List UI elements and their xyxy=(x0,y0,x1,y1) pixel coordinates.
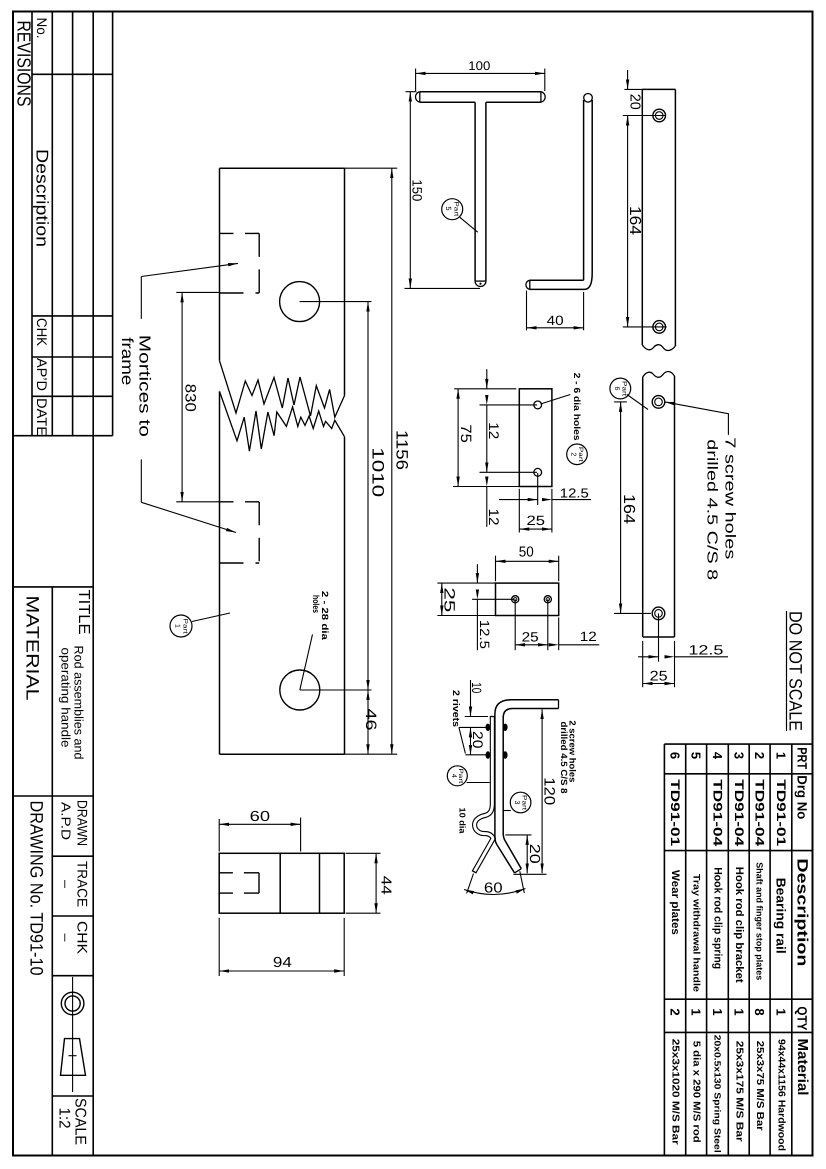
svg-text:Shaft and finger stop plates: Shaft and finger stop plates xyxy=(755,862,765,980)
svg-text:operating handle: operating handle xyxy=(59,648,73,748)
svg-text:Part: Part xyxy=(577,447,584,462)
svg-text:Bearing rail: Bearing rail xyxy=(773,878,788,954)
svg-text:1: 1 xyxy=(773,752,788,759)
svg-text:4: 4 xyxy=(710,752,725,760)
svg-text:drilled 4.5 C/S 8: drilled 4.5 C/S 8 xyxy=(559,722,569,794)
svg-text:7 screw holes: 7 screw holes xyxy=(722,437,738,559)
svg-text:60: 60 xyxy=(484,880,503,896)
svg-text:DRAWING No. TD91-10: DRAWING No. TD91-10 xyxy=(27,801,47,976)
svg-text:TD91-04: TD91-04 xyxy=(732,779,746,846)
svg-text:TD91-01: TD91-01 xyxy=(668,779,682,846)
svg-text:Part: Part xyxy=(620,381,627,396)
svg-text:25: 25 xyxy=(527,513,546,528)
svg-text:8: 8 xyxy=(752,1008,767,1015)
svg-text:75: 75 xyxy=(457,424,474,443)
svg-text:Mortices to: Mortices to xyxy=(135,335,152,437)
svg-text:150: 150 xyxy=(409,179,424,201)
svg-text:CHK: CHK xyxy=(75,921,91,955)
svg-text:1: 1 xyxy=(710,1008,725,1015)
svg-text:Hook rod clip bracket: Hook rod clip bracket xyxy=(733,867,745,983)
svg-text:No.: No. xyxy=(34,18,50,39)
svg-text:40: 40 xyxy=(547,313,564,328)
svg-text:Rod assemblies and: Rod assemblies and xyxy=(72,646,86,760)
svg-text:drilled 4.5 C/S 8: drilled 4.5 C/S 8 xyxy=(704,439,720,580)
svg-text:Description: Description xyxy=(33,149,52,247)
svg-text:50: 50 xyxy=(519,545,534,561)
svg-text:frame: frame xyxy=(118,337,135,385)
svg-text:12.5: 12.5 xyxy=(477,620,492,649)
svg-text:Part: Part xyxy=(181,619,188,634)
svg-text:–: – xyxy=(59,880,74,889)
svg-text:5 dia x 290 M/S rod: 5 dia x 290 M/S rod xyxy=(691,1041,702,1143)
svg-text:25: 25 xyxy=(522,629,539,644)
svg-text:4: 4 xyxy=(450,774,457,778)
svg-text:DO NOT SCALE: DO NOT SCALE xyxy=(786,611,806,731)
svg-text:44: 44 xyxy=(378,876,394,895)
svg-text:1: 1 xyxy=(731,1008,746,1015)
svg-text:–: – xyxy=(59,934,74,943)
svg-text:holes: holes xyxy=(311,595,321,613)
svg-text:1: 1 xyxy=(689,1008,704,1015)
svg-text:100: 100 xyxy=(468,59,490,73)
svg-text:20: 20 xyxy=(526,844,542,864)
svg-text:10: 10 xyxy=(469,682,484,693)
svg-text:1: 1 xyxy=(773,1008,788,1015)
svg-text:Hook rod clip spring: Hook rod clip spring xyxy=(712,867,724,969)
svg-text:Tray withdrawal handle: Tray withdrawal handle xyxy=(691,874,702,992)
svg-text:Material: Material xyxy=(794,1039,810,1096)
svg-text:Drg No: Drg No xyxy=(795,775,810,819)
svg-text:12: 12 xyxy=(486,509,502,526)
svg-text:3: 3 xyxy=(513,801,520,805)
svg-text:1010: 1010 xyxy=(368,447,386,497)
svg-text:Description: Description xyxy=(794,858,811,966)
svg-text:SCALE: SCALE xyxy=(72,1098,89,1145)
svg-text:94: 94 xyxy=(273,955,292,971)
svg-text:2: 2 xyxy=(570,452,577,456)
svg-text:1: 1 xyxy=(174,624,181,628)
svg-text:A.P.D: A.P.D xyxy=(59,802,74,840)
svg-text:2 rivets: 2 rivets xyxy=(450,690,461,727)
svg-text:DATE: DATE xyxy=(34,398,50,436)
svg-text:12.5: 12.5 xyxy=(688,643,723,658)
svg-text:TITLE: TITLE xyxy=(75,590,92,635)
svg-text:164: 164 xyxy=(620,494,637,524)
svg-text:Part: Part xyxy=(457,768,464,783)
svg-text:DRAWN: DRAWN xyxy=(75,800,91,846)
svg-text:46: 46 xyxy=(362,709,379,731)
svg-text:REVISIONS: REVISIONS xyxy=(12,21,33,107)
svg-text:2: 2 xyxy=(752,752,767,759)
svg-text:12: 12 xyxy=(486,422,502,439)
svg-text:2 - 6 dia holes: 2 - 6 dia holes xyxy=(572,373,582,441)
svg-text:12: 12 xyxy=(580,629,597,644)
svg-text:94x44x1156 Hardwood: 94x44x1156 Hardwood xyxy=(775,1039,786,1151)
svg-text:TD91-01: TD91-01 xyxy=(774,779,788,846)
svg-text:Part: Part xyxy=(521,795,528,810)
svg-text:6: 6 xyxy=(613,387,620,391)
svg-text:25x3x1020 M/S Bar: 25x3x1020 M/S Bar xyxy=(670,1039,681,1145)
svg-text:25x3x75 M/S Bar: 25x3x75 M/S Bar xyxy=(754,1041,765,1131)
svg-text:MATERIAL: MATERIAL xyxy=(23,596,43,701)
svg-text:AP’D: AP’D xyxy=(34,358,50,391)
svg-text:10 dia: 10 dia xyxy=(458,808,468,834)
svg-text:25: 25 xyxy=(441,587,458,612)
svg-text:2: 2 xyxy=(668,1008,683,1015)
svg-text:1:2: 1:2 xyxy=(56,1108,73,1129)
svg-text:3: 3 xyxy=(731,752,746,759)
svg-text:5: 5 xyxy=(444,206,453,210)
svg-text:20x0.5x130 Spring Steel: 20x0.5x130 Spring Steel xyxy=(713,1035,723,1153)
svg-text:12.5: 12.5 xyxy=(560,486,589,501)
svg-text:164: 164 xyxy=(626,206,643,235)
svg-text:5: 5 xyxy=(689,752,704,759)
svg-text:PRT: PRT xyxy=(795,747,810,770)
svg-text:6: 6 xyxy=(668,752,683,759)
svg-text:60: 60 xyxy=(250,809,270,825)
svg-text:1156: 1156 xyxy=(393,430,411,470)
svg-text:120: 120 xyxy=(541,777,558,805)
svg-text:TD91-04: TD91-04 xyxy=(753,779,767,846)
svg-text:CHK: CHK xyxy=(34,318,50,347)
svg-text:QTY: QTY xyxy=(795,1006,810,1030)
svg-text:20: 20 xyxy=(627,94,643,110)
svg-text:Wear plates: Wear plates xyxy=(669,870,681,935)
svg-text:TRACE: TRACE xyxy=(75,861,91,907)
svg-text:25x3x175 M/S Bar: 25x3x175 M/S Bar xyxy=(733,1041,744,1142)
svg-text:830: 830 xyxy=(182,384,199,412)
svg-text:25: 25 xyxy=(650,667,668,683)
svg-text:TD91-04: TD91-04 xyxy=(711,779,725,846)
svg-text:20: 20 xyxy=(470,731,486,749)
